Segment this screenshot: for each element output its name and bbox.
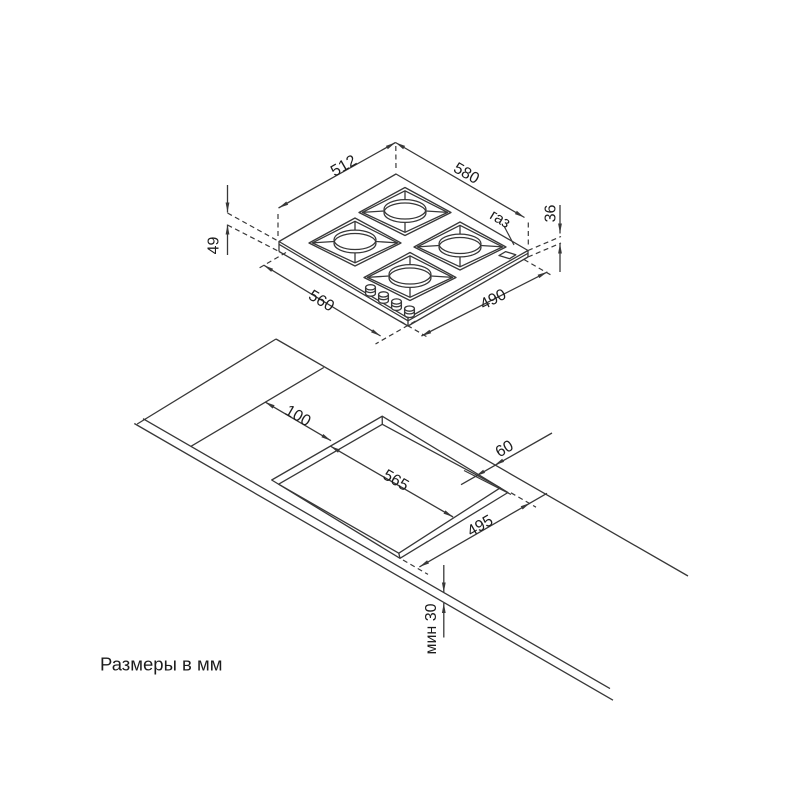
svg-text:49: 49 (206, 237, 223, 255)
svg-text:мин 30: мин 30 (423, 603, 440, 654)
svg-text:36: 36 (543, 205, 560, 223)
svg-text:Размеры в мм: Размеры в мм (100, 653, 222, 674)
